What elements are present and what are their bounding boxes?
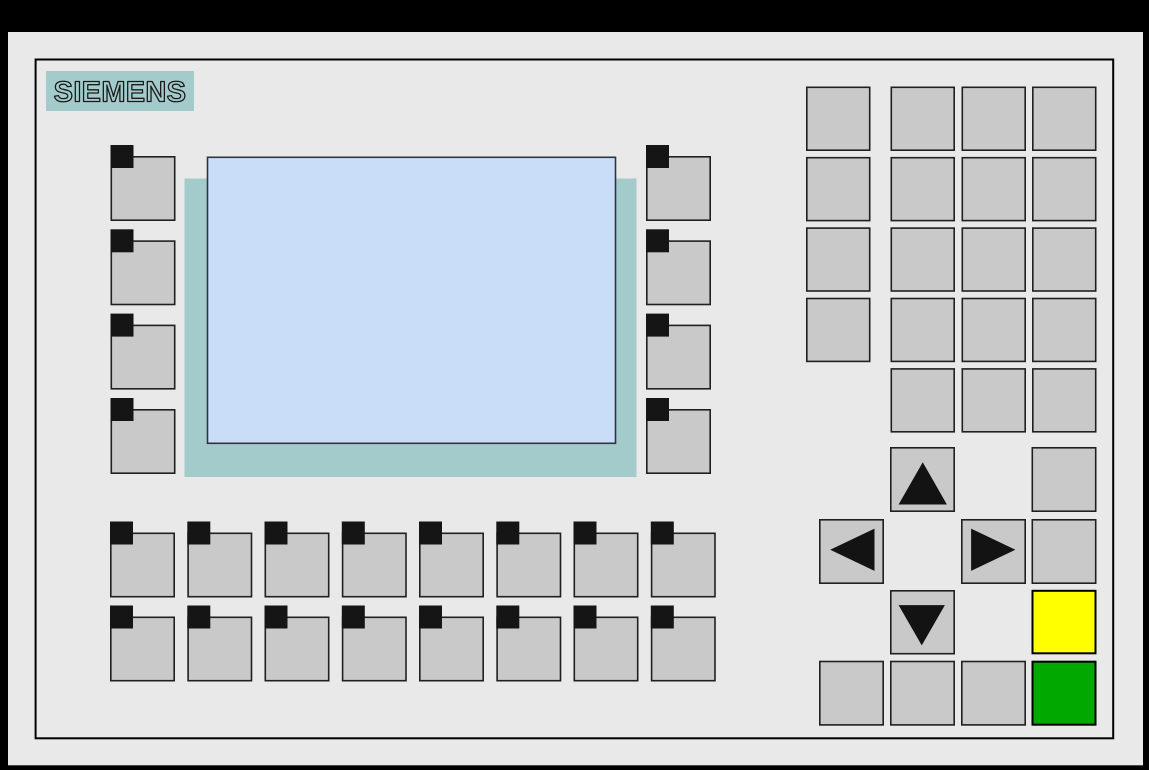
svg-text:SIEMENS: SIEMENS <box>54 77 187 109</box>
